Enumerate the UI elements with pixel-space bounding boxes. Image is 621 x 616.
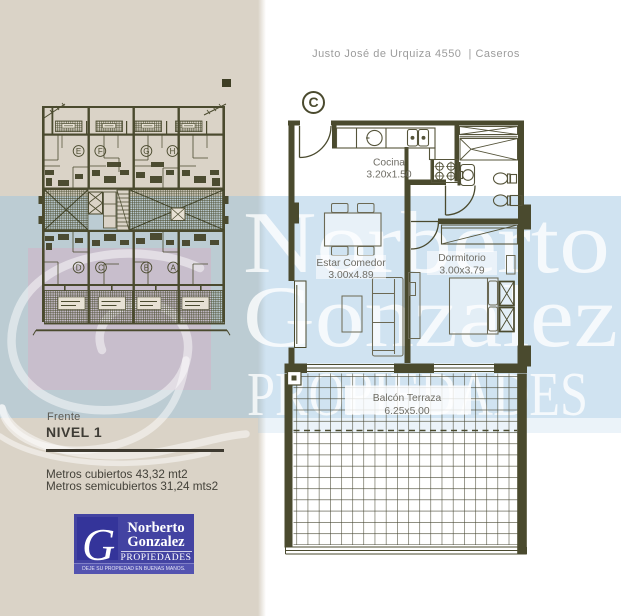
svg-text:B: B (144, 263, 149, 272)
svg-text:D: D (76, 263, 82, 272)
svg-text:C: C (98, 263, 104, 272)
svg-text:Dormitorio: Dormitorio (438, 253, 486, 264)
svg-text:Estar Comedor: Estar Comedor (316, 258, 386, 269)
svg-text:G: G (143, 147, 149, 156)
svg-text:3.00x4.89: 3.00x4.89 (328, 270, 374, 281)
svg-text:Cocina: Cocina (373, 158, 405, 169)
svg-text:E: E (76, 147, 81, 156)
svg-text:3.20x1.50: 3.20x1.50 (366, 170, 412, 181)
svg-text:6.25x5.00: 6.25x5.00 (384, 406, 430, 417)
svg-text:F: F (98, 147, 103, 156)
svg-text:Balcón Terraza: Balcón Terraza (373, 393, 442, 404)
svg-text:H: H (170, 147, 176, 156)
svg-text:A: A (171, 263, 177, 272)
svg-text:3.00x3.79: 3.00x3.79 (439, 266, 485, 277)
